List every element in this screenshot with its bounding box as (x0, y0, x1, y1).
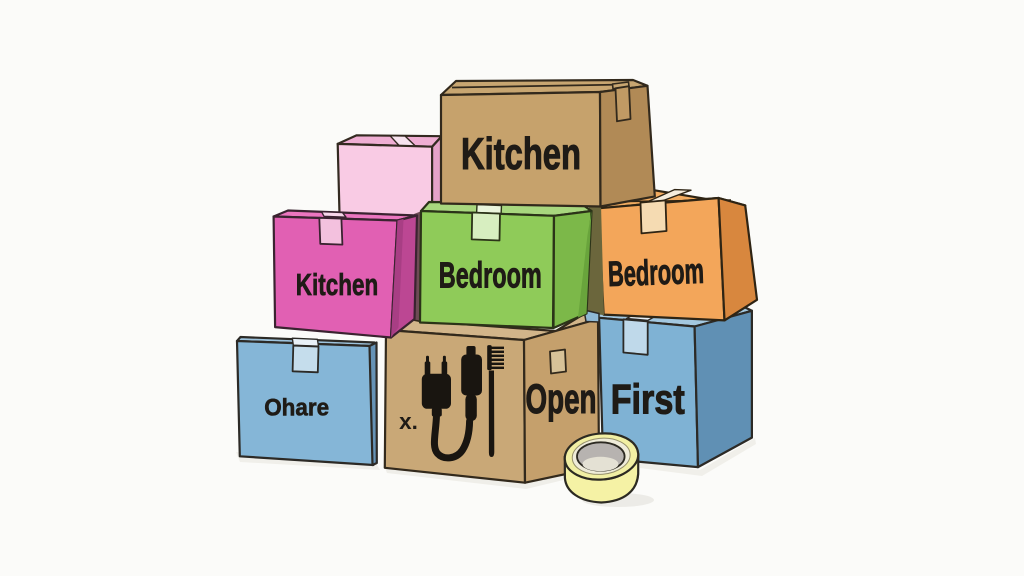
svg-text:Bedroom: Bedroom (607, 251, 704, 294)
svg-text:Ohare: Ohare (264, 395, 329, 422)
svg-text:Kitchen: Kitchen (461, 130, 581, 179)
svg-text:Open: Open (526, 375, 597, 422)
svg-text:Kitchen: Kitchen (296, 269, 379, 302)
svg-text:x.: x. (399, 409, 418, 434)
svg-text:First: First (611, 376, 685, 423)
svg-text:Bedroom: Bedroom (439, 254, 542, 295)
